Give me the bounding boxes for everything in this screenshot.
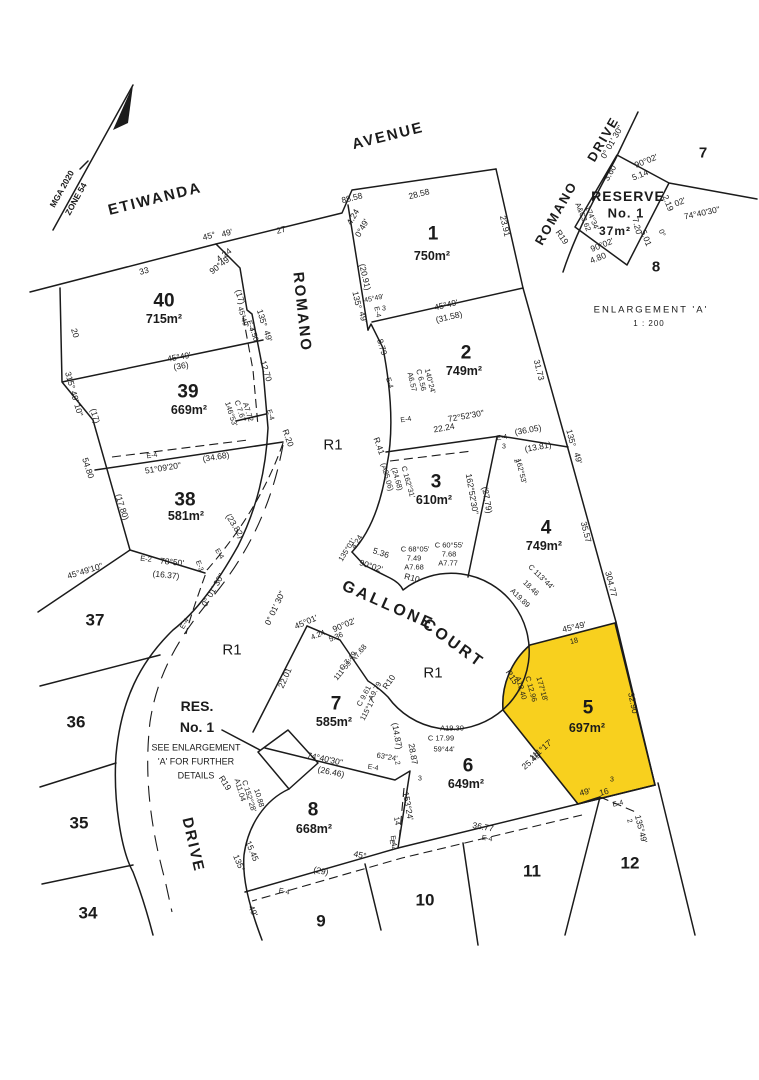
lot12-east-boundary	[658, 783, 695, 935]
plan-linework	[0, 0, 759, 1080]
lot1-boundaries	[348, 205, 523, 330]
etiwanda-frontage	[216, 169, 496, 244]
enlargement-linework	[563, 112, 757, 272]
subdivision-plan: ETIWANDAAVENUEROMANODRIVEGALLONECOURTROM…	[0, 0, 759, 1080]
lot3-4-divider	[468, 437, 497, 577]
gallone-court-outline	[307, 552, 529, 729]
road-centerline-dashed	[148, 445, 283, 912]
north-arrowhead	[113, 85, 133, 130]
south-block-boundary	[245, 785, 655, 892]
east-boundary	[496, 169, 616, 622]
reserve-square	[222, 730, 318, 789]
north-arrow-line	[53, 85, 133, 230]
lot8-west-arc	[244, 789, 289, 940]
lot7-west-boundary	[253, 626, 307, 732]
west-lot-boundaries	[38, 288, 283, 884]
easement-dashed-lines	[112, 316, 638, 901]
lot7-8-boundary	[265, 748, 410, 848]
lot2-south-boundary	[386, 436, 568, 452]
lot-5-polygon	[503, 623, 655, 804]
road-west-edge	[30, 244, 268, 935]
romano-east-curve	[352, 324, 391, 552]
